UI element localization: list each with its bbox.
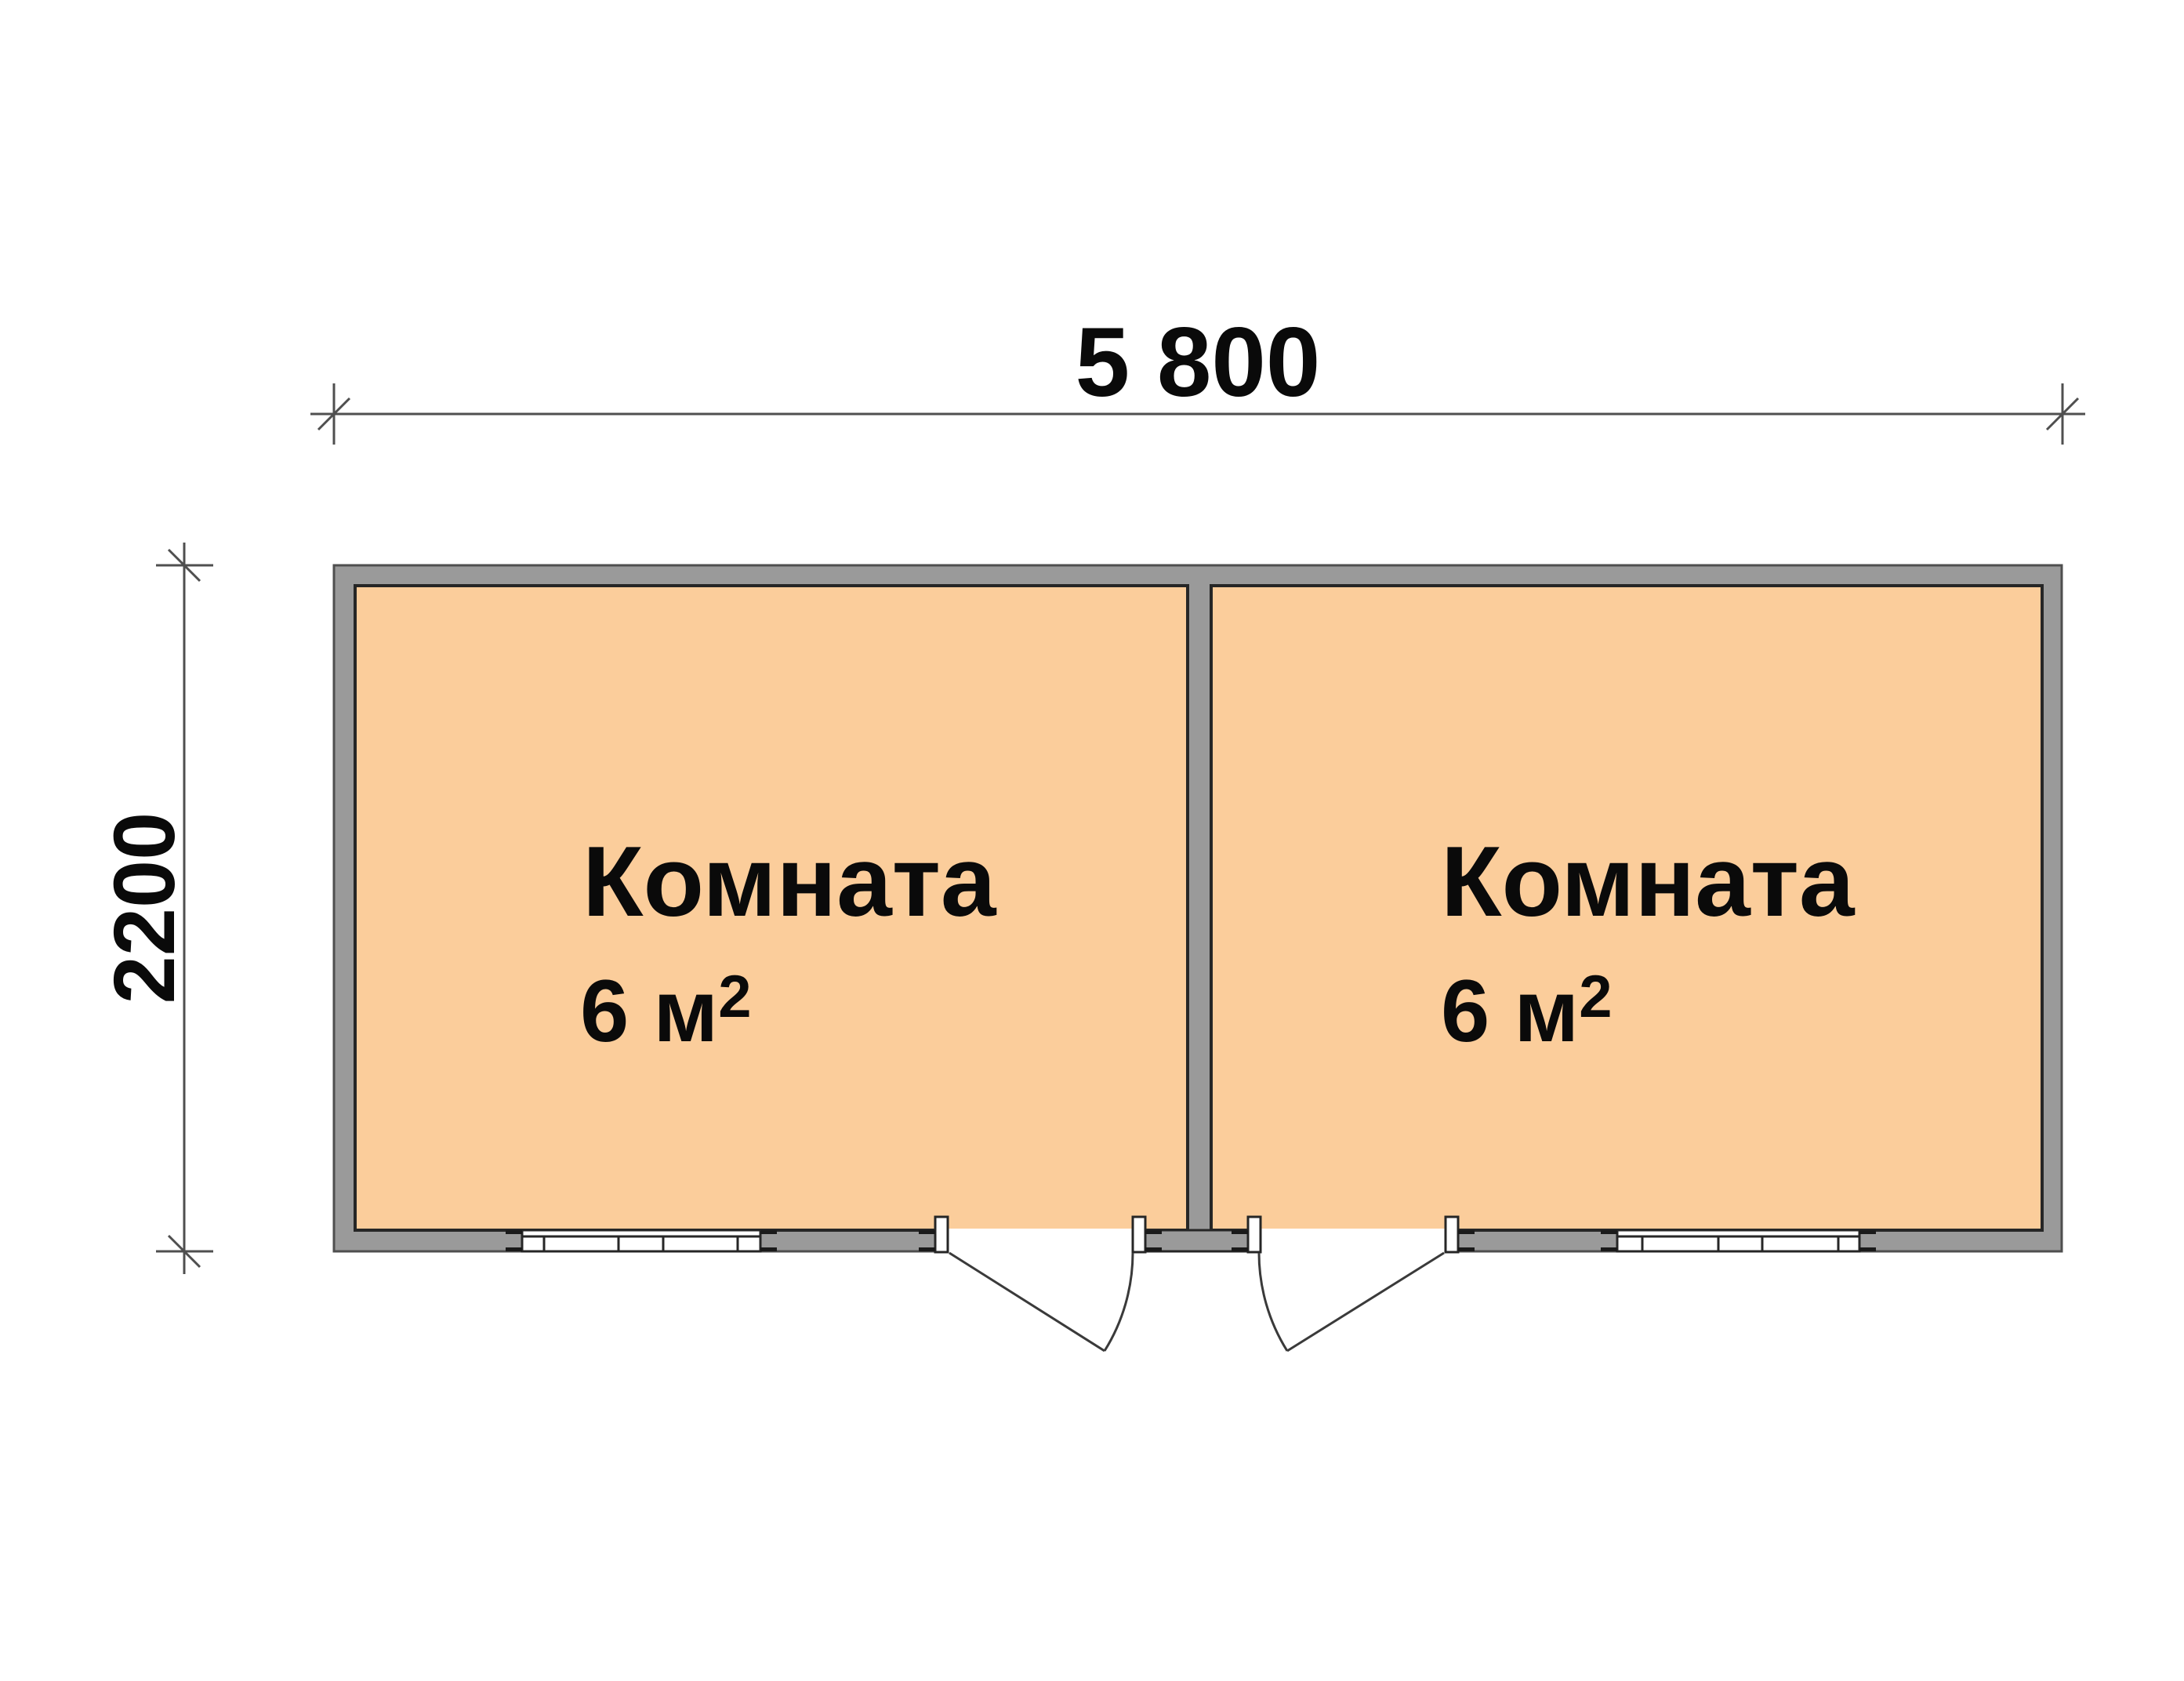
door-2-opening (1261, 1229, 1446, 1254)
room-1-name: Комната (582, 826, 997, 937)
door-2-jamb-hinge (1446, 1217, 1458, 1252)
room-1-area-superscript: 2 (718, 964, 751, 1030)
dimension-horizontal: 5 800 (310, 308, 2085, 445)
door-2-jamb-latch (1248, 1217, 1261, 1252)
floor-plan-page: 5 800 2200 (0, 0, 2184, 1681)
door-1-swing-arc (1105, 1253, 1133, 1351)
dimension-vertical: 2200 (96, 543, 213, 1274)
room-2-name: Комната (1441, 826, 1856, 937)
room-2-area-value: 6 м (1441, 962, 1579, 1060)
room-1-area-value: 6 м (580, 962, 718, 1060)
door-1-leaf (949, 1253, 1105, 1351)
door-1-jamb-hinge (935, 1217, 948, 1252)
floor-plan-canvas: 5 800 2200 (0, 0, 2184, 1681)
door-1-opening (948, 1229, 1133, 1254)
door-1-jamb-latch (1133, 1217, 1145, 1252)
window-2-frame (1617, 1230, 1859, 1251)
window-1-frame (522, 1230, 760, 1251)
door-2-leaf (1287, 1253, 1444, 1351)
door-2-swing-arc (1259, 1253, 1287, 1351)
window-1 (522, 1230, 760, 1251)
dim-width-label: 5 800 (1076, 308, 1321, 417)
room-2-area-superscript: 2 (1579, 964, 1612, 1030)
dim-height-label: 2200 (96, 812, 193, 1004)
window-2 (1617, 1230, 1859, 1251)
